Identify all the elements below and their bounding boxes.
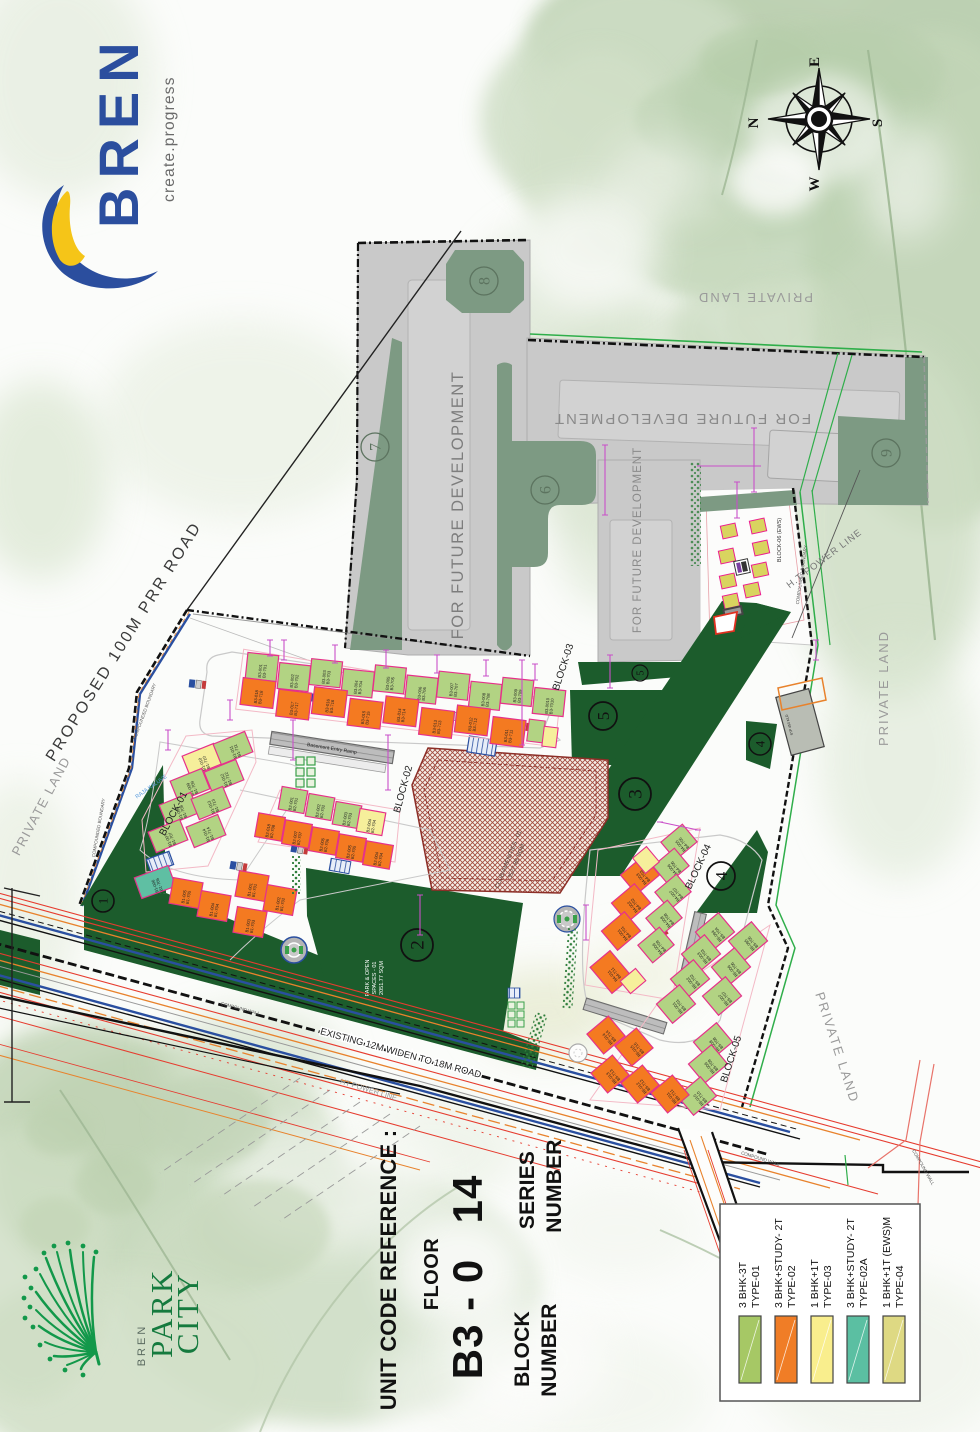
svg-text:3 BHK+STUDY- 2T: 3 BHK+STUDY- 2T [773, 1218, 785, 1308]
svg-text:W: W [807, 177, 823, 192]
svg-text:3 BHK+STUDY- 2T: 3 BHK+STUDY- 2T [845, 1218, 857, 1308]
svg-text:BLOCK: BLOCK [511, 1311, 534, 1387]
svg-text:NUMBER: NUMBER [538, 1303, 561, 1396]
svg-text:1 BHK+1T: 1 BHK+1T [809, 1259, 821, 1308]
svg-text:1: 1 [96, 898, 111, 905]
svg-text:BREN: BREN [87, 33, 150, 228]
svg-text:4: 4 [753, 740, 768, 747]
svg-text:N: N [746, 117, 762, 128]
svg-text:FLOOR: FLOOR [421, 1238, 443, 1311]
svg-text:S: S [870, 119, 886, 127]
svg-text:3: 3 [626, 789, 647, 799]
svg-text:UNIT CODE REFERENCE :: UNIT CODE REFERENCE : [376, 1130, 401, 1410]
svg-text:TYPE-02A: TYPE-02A [858, 1258, 870, 1308]
svg-text:2: 2 [408, 940, 429, 950]
svg-text:B3 - 0: B3 - 0 [444, 1259, 491, 1379]
svg-text:create.progress: create.progress [161, 76, 178, 202]
svg-text:TYPE-03: TYPE-03 [822, 1265, 834, 1308]
svg-text:2051.77 SQM: 2051.77 SQM [379, 961, 385, 995]
svg-text:FOR FUTURE DEVELOPMENT: FOR FUTURE DEVELOPMENT [449, 371, 467, 640]
svg-text:14: 14 [444, 1175, 491, 1224]
svg-text:TYPE-04: TYPE-04 [894, 1265, 906, 1308]
svg-text:SERIES: SERIES [516, 1151, 539, 1229]
svg-text:FOR FUTURE DEVELOPMENT: FOR FUTURE DEVELOPMENT [632, 447, 644, 633]
svg-text:7: 7 [368, 443, 385, 451]
svg-text:BLOCK-06 (EWS): BLOCK-06 (EWS) [777, 518, 783, 562]
svg-text:6: 6 [538, 486, 555, 494]
svg-text:TYPE-01: TYPE-01 [750, 1265, 762, 1308]
svg-text:3 BHK-3T: 3 BHK-3T [737, 1261, 749, 1308]
svg-text:TYPE-02: TYPE-02 [786, 1265, 798, 1308]
svg-text:BLOCK-02: BLOCK-02 [392, 764, 415, 814]
svg-text:9: 9 [879, 449, 896, 457]
svg-text:FOR FUTURE DEVELOPMENT: FOR FUTURE DEVELOPMENT [553, 410, 811, 427]
svg-text:NUMBER: NUMBER [543, 1139, 566, 1232]
svg-text:BLOCK-03: BLOCK-03 [551, 642, 577, 692]
svg-text:1 BHK+1T (EWS)M: 1 BHK+1T (EWS)M [881, 1217, 893, 1308]
svg-text:PARK & OPEN: PARK & OPEN [365, 960, 371, 997]
svg-text:5: 5 [636, 671, 647, 676]
svg-text:E: E [807, 57, 823, 67]
svg-text:PRIVATE LAND: PRIVATE LAND [697, 290, 813, 305]
svg-text:CITY: CITY [170, 1272, 205, 1354]
svg-text:PRIVATE LAND: PRIVATE LAND [812, 990, 862, 1105]
svg-text:5: 5 [594, 712, 613, 721]
svg-text:SPACES - 01: SPACES - 01 [372, 962, 378, 995]
svg-text:8: 8 [477, 277, 494, 285]
svg-text:4: 4 [712, 871, 731, 880]
svg-text:PRIVATE LAND: PRIVATE LAND [876, 630, 891, 746]
